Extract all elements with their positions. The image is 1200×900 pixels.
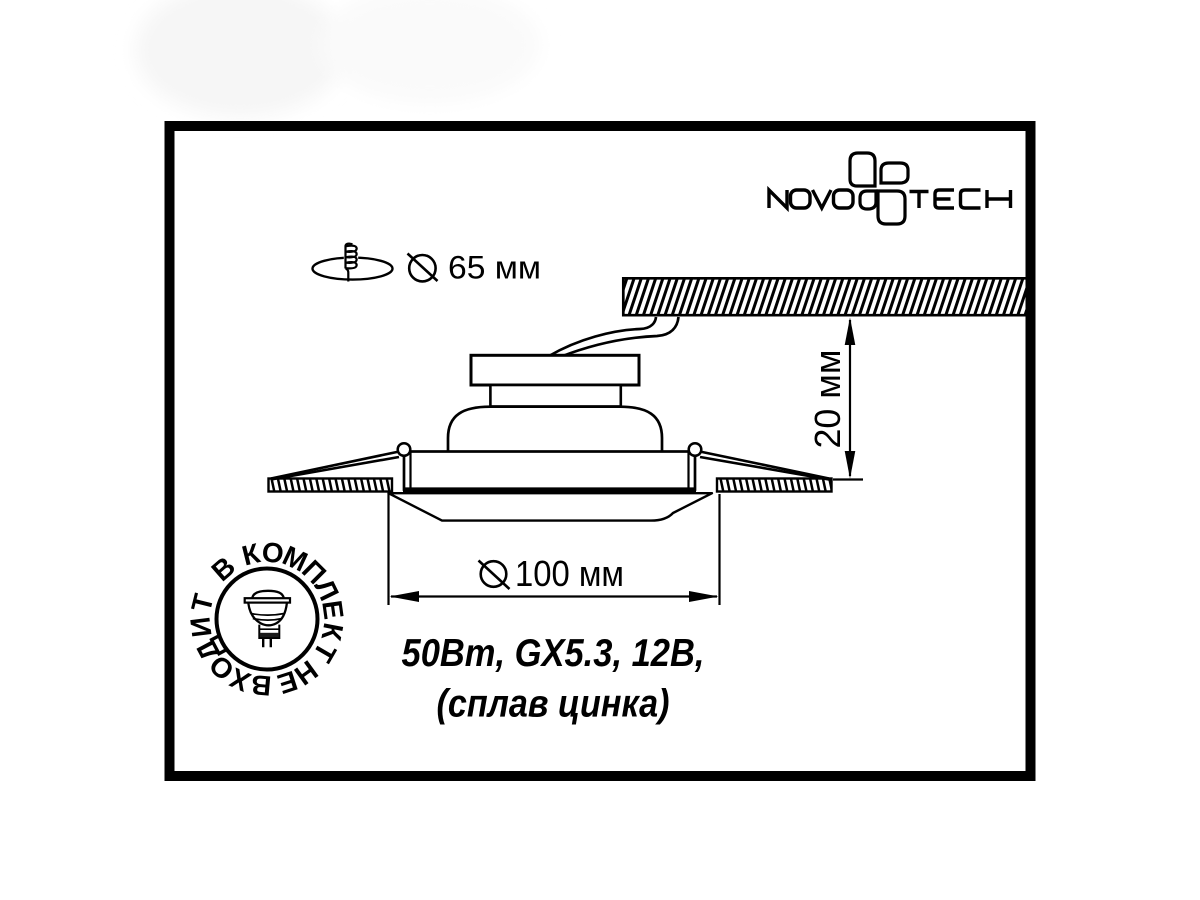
svg-text:И: И: [184, 615, 217, 639]
svg-text:50Вm, GX5.3, 12В,: 50Вm, GX5.3, 12В,: [402, 632, 705, 675]
svg-text:65 мм: 65 мм: [448, 250, 541, 286]
svg-text:100 мм: 100 мм: [515, 553, 624, 594]
svg-text:20 мм: 20 мм: [807, 350, 848, 449]
svg-text:(сплав цинка): (сплав цинка): [437, 683, 670, 726]
